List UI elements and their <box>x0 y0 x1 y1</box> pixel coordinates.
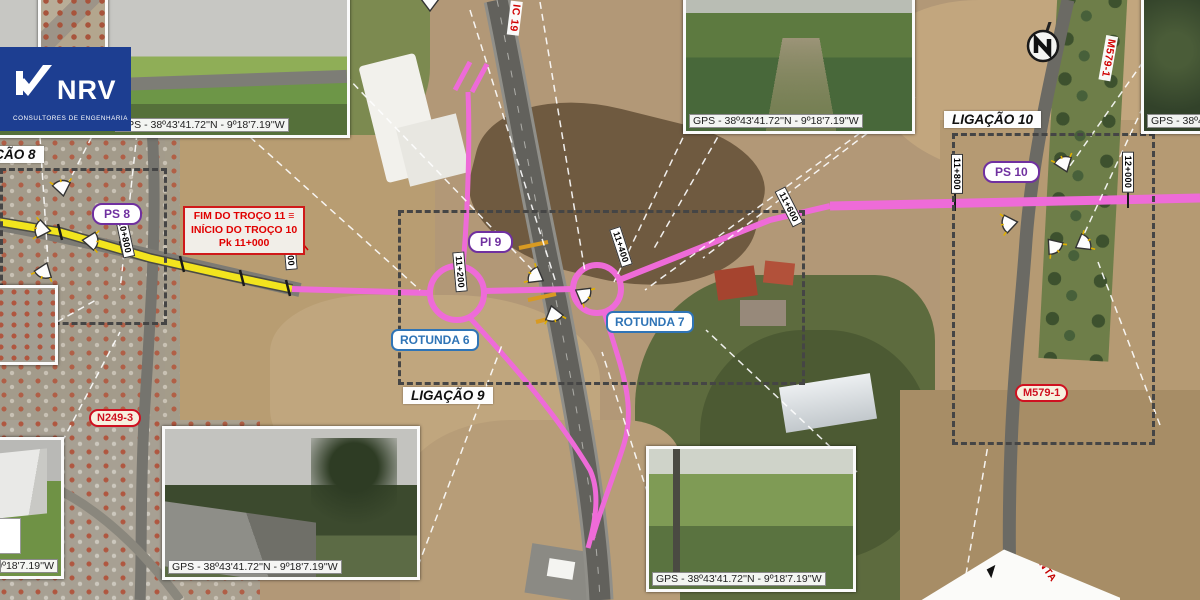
photo-image <box>41 0 105 49</box>
annotation-line-3: Pk 11+000 <box>191 237 297 251</box>
label-ps8: PS 8 <box>92 203 142 225</box>
label-ligacao-8: LIGAÇÃO 8 <box>0 146 44 163</box>
gps-caption: GPS - 38º43'41.72''N - 9º18'7.19''W <box>1147 114 1200 128</box>
site-photo-top-center: GPS - 38º43'41.72''N - 9º18'7.19''W <box>683 0 915 134</box>
photo-image <box>0 440 61 576</box>
label-pi9: PI 9 <box>468 231 513 253</box>
gps-caption: GPS - 38º43'41.72''N - 9º18'7.19''W <box>168 560 342 574</box>
gps-caption: GPS - 38º43'41.72''N - 9º18'7.19''W <box>689 114 863 128</box>
photo-image <box>649 449 853 589</box>
label-m579-1: M579-1 <box>1015 384 1068 402</box>
study-area-box-9 <box>398 210 805 385</box>
annotation-line-2: INÍCIO DO TROÇO 10 <box>191 224 297 238</box>
label-rotunda-6: ROTUNDA 6 <box>391 329 479 351</box>
chainage-label: 11+800 <box>951 154 963 194</box>
camera-view-cone-icon <box>999 210 1021 237</box>
nrv-logo-mark-icon <box>12 61 54 99</box>
camera-view-cone-icon <box>418 0 442 12</box>
plan-drawing: LIGAÇÃO 8 LIGAÇÃO 9 LIGAÇÃO 10 PS 8 PI 9… <box>0 0 1200 600</box>
gps-caption: GPS - 38º43'41.72''N - 9º18'7.19''W <box>115 118 289 132</box>
section-limit-annotation: FIM DO TROÇO 11 ≡ INÍCIO DO TROÇO 10 Pk … <box>183 206 305 255</box>
camera-view-cone-icon <box>80 228 100 253</box>
nrv-logo: NRV CONSULTORES DE ENGENHARIA <box>0 47 131 131</box>
label-rotunda-7: ROTUNDA 7 <box>606 311 694 333</box>
aerial-inset-photo-left <box>0 285 58 365</box>
site-photo-bottom-road: GPS - 38º43'41.72''N - 9º18'7.19''W <box>162 426 420 580</box>
site-photo-top-right: GPS - 38º43'41.72''N - 9º18'7.19''W <box>1141 0 1200 134</box>
gps-caption: GPS - 38º43'41.72''N - 9º18'7.19''W <box>652 572 826 586</box>
small-north-arrow-icon: ◤ <box>985 562 1001 581</box>
photo-image <box>686 0 912 131</box>
mini-inset <box>0 518 21 554</box>
site-photo-bottom-center: GPS - 38º43'41.72''N - 9º18'7.19''W <box>646 446 856 592</box>
photo-image <box>165 429 417 577</box>
chainage-label: 12+000 <box>1122 152 1134 193</box>
label-n249-3: N249-3 <box>89 409 141 427</box>
label-ligacao-10: LIGAÇÃO 10 <box>944 111 1041 128</box>
brand-name: NRV <box>57 75 117 106</box>
label-ps10: PS 10 <box>983 161 1040 183</box>
gps-caption: GPS - 38º43'41.72''N - 9º18'7.19''W <box>0 559 58 573</box>
annotation-line-1: FIM DO TROÇO 11 ≡ <box>191 210 297 224</box>
site-photo-bottom-left: GPS - 38º43'41.72''N - 9º18'7.19''W <box>0 437 64 579</box>
photo-image <box>0 288 55 362</box>
brand-tagline: CONSULTORES DE ENGENHARIA <box>13 115 128 122</box>
photo-image <box>1144 0 1200 131</box>
north-arrow-icon <box>1022 22 1064 64</box>
label-ligacao-9: LIGAÇÃO 9 <box>403 387 493 404</box>
aerial-inset-photo <box>38 0 108 52</box>
